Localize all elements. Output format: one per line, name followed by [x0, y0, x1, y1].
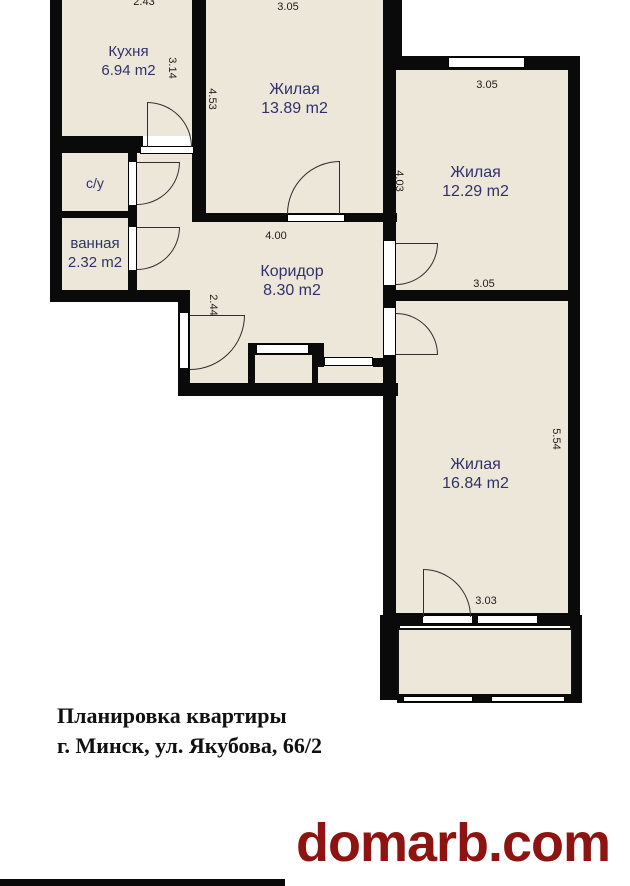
- living2-window: [448, 57, 525, 68]
- floorplan-image: Кухня 6.94 m2 Жилая 13.89 m2 Жилая 12.29…: [0, 0, 630, 886]
- bottom-bar: [0, 879, 285, 886]
- room-name: Жилая: [383, 455, 568, 474]
- room-name: ванная: [62, 234, 128, 253]
- dim-living1-left: 4.53: [206, 84, 218, 114]
- living1-door-sill: [287, 214, 345, 222]
- entrance-door-opening: [179, 313, 189, 368]
- plan-caption: Планировка квартиры г. Минск, ул. Якубов…: [57, 701, 322, 761]
- room-area: 16.84 m2: [383, 474, 568, 493]
- room-label-wc: с/у: [62, 174, 128, 193]
- room-area: 13.89 m2: [206, 99, 383, 118]
- living2-door-opening: [383, 241, 396, 285]
- wall-segment: [50, 290, 190, 302]
- room-area: 8.30 m2: [206, 281, 378, 300]
- dim-kitchen-right: 3.14: [166, 53, 178, 83]
- brand-watermark: domarb.com: [296, 812, 610, 874]
- caption-address: г. Минск, ул. Якубова, 66/2: [57, 731, 322, 761]
- balcony-slab: [397, 628, 573, 703]
- alcove-door-slot: [324, 357, 373, 366]
- room-label-living2: Жилая 12.29 m2: [383, 163, 568, 201]
- living3-door-opening: [383, 308, 396, 355]
- wall-segment: [50, 211, 137, 218]
- dim-living2-left: 4.03: [393, 166, 405, 196]
- closet-door-slot: [256, 344, 309, 354]
- balcony-window-opening: [478, 615, 537, 624]
- room-label-corridor: Коридор 8.30 m2: [206, 262, 378, 300]
- wall-segment: [383, 290, 580, 301]
- kitchen-door-sill: [140, 146, 194, 154]
- closet-inner: [255, 355, 312, 383]
- dim-kitchen-top: 2.43: [119, 0, 169, 8]
- room-area: 2.32 m2: [62, 253, 128, 272]
- room-name: Жилая: [206, 80, 383, 99]
- dim-living3-right: 5.54: [550, 424, 562, 454]
- room-name: Жилая: [383, 163, 568, 182]
- wall-segment: [192, 0, 206, 222]
- room-area: 12.29 m2: [383, 182, 568, 201]
- wall-segment: [128, 148, 137, 162]
- dim-living3-bottom: 3.03: [461, 595, 511, 607]
- room-label-living1: Жилая 13.89 m2: [206, 80, 383, 118]
- dim-living1-top: 3.05: [263, 1, 313, 13]
- room-label-bath: ванная 2.32 m2: [62, 234, 128, 272]
- balcony-window: [403, 696, 473, 702]
- dim-living2-top: 3.05: [462, 79, 512, 91]
- dim-corridor-top: 4.00: [251, 230, 301, 242]
- wall-segment: [373, 358, 383, 367]
- room-name: с/у: [62, 174, 128, 193]
- wall-segment: [128, 218, 137, 227]
- dim-corridor-left: 2.44: [207, 290, 219, 320]
- balcony-window: [491, 696, 565, 702]
- wc-door-opening: [128, 162, 137, 205]
- wall-segment: [128, 270, 137, 290]
- wall-segment: [568, 56, 580, 626]
- caption-title: Планировка квартиры: [57, 701, 322, 731]
- dim-living2-bottom: 3.05: [459, 278, 509, 290]
- bath-door-opening: [128, 227, 137, 270]
- room-label-living3: Жилая 16.84 m2: [383, 455, 568, 493]
- room-name: Коридор: [206, 262, 378, 281]
